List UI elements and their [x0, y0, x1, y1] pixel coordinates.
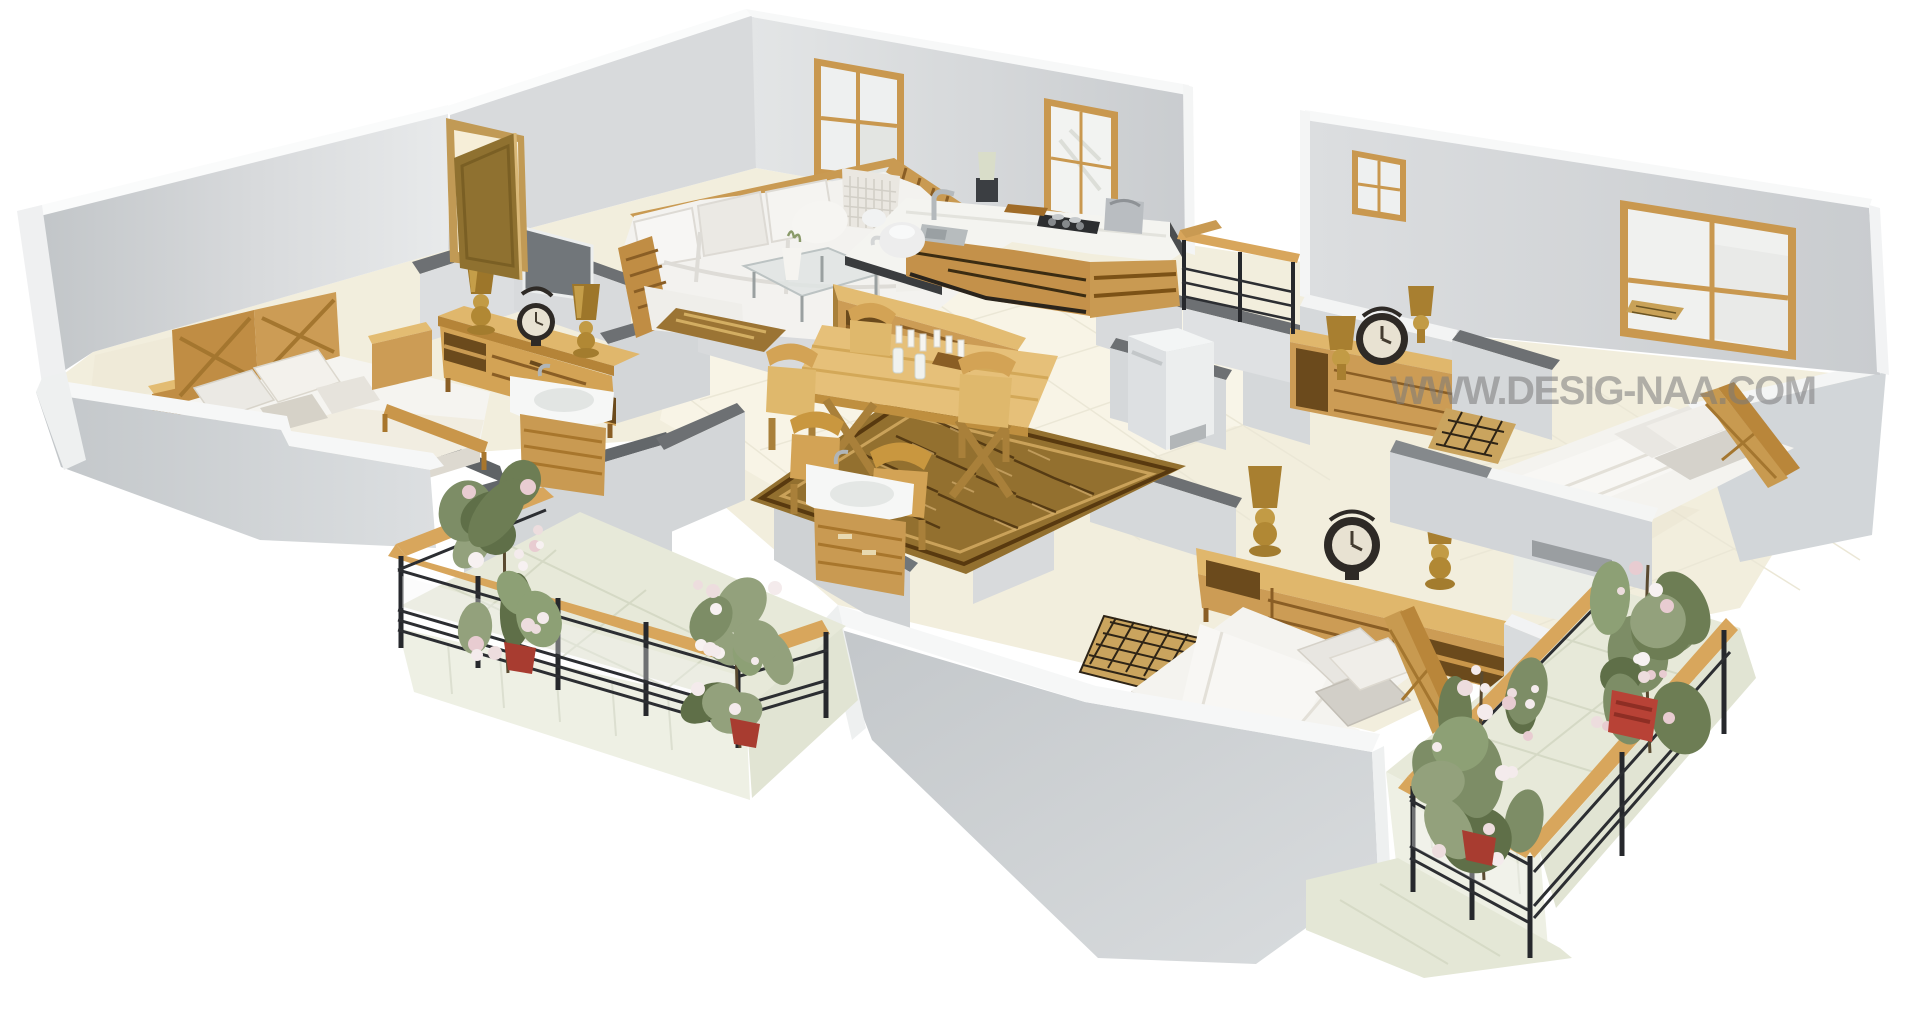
svg-text:WWW.DESIG-NAA.COM: WWW.DESIG-NAA.COM: [1390, 369, 1816, 413]
